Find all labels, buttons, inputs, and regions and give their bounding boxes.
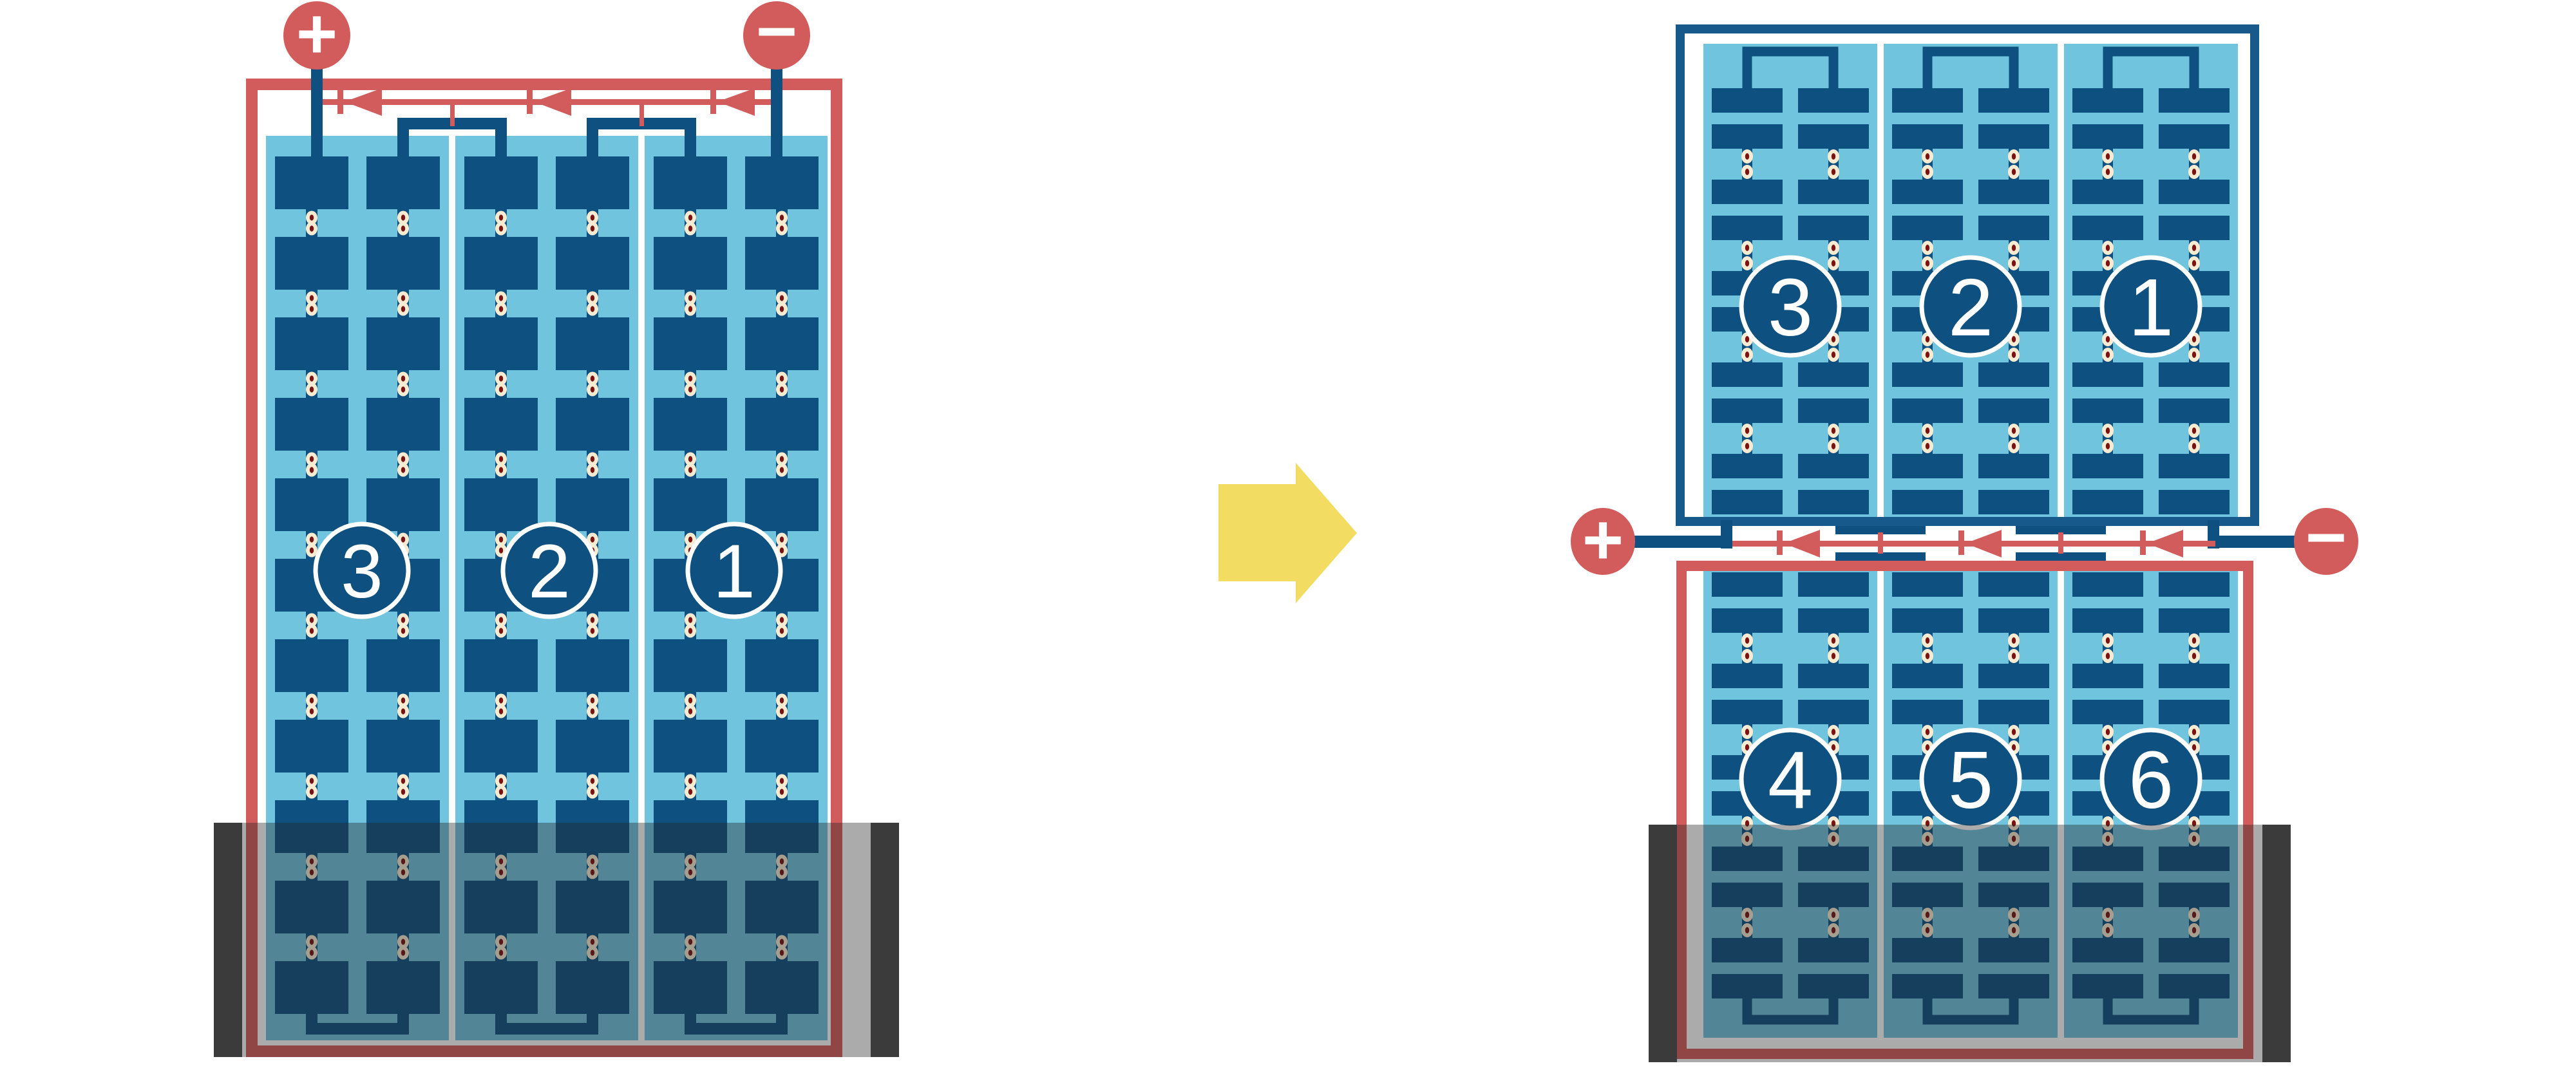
left-positive-wire <box>311 63 323 161</box>
string-number: 5 <box>1948 735 1993 825</box>
rb-string-badge-4: 4 <box>1741 730 1839 828</box>
flood-water <box>1677 825 2262 1062</box>
flood-cap-left <box>214 823 242 1057</box>
string-number: 4 <box>1768 735 1813 825</box>
string-number: 1 <box>2128 262 2173 353</box>
solar-panel-diagram: + − 3 2 1 <box>0 0 2576 1068</box>
rb-string-badge-5: 5 <box>1922 730 2020 828</box>
rb-string-badge-6: 6 <box>2102 730 2200 828</box>
string-number: 3 <box>341 529 383 614</box>
plus-icon: + <box>296 0 337 73</box>
left-string-badge-2: 2 <box>503 524 596 617</box>
string-number: 2 <box>1948 262 1993 353</box>
flood-water <box>242 823 871 1057</box>
flood-cap-right <box>871 823 899 1057</box>
string-number: 2 <box>528 529 571 614</box>
left-bypass-diode-line <box>317 88 777 126</box>
minus-icon: − <box>756 0 797 71</box>
plus-icon: + <box>1582 500 1624 579</box>
rt-string-badge-2: 2 <box>1922 258 2020 355</box>
flood-cap-right <box>2262 825 2291 1062</box>
positive-terminal-right: + <box>1571 500 1635 579</box>
diode-tick <box>1878 532 1883 554</box>
string-number: 3 <box>1768 262 1813 353</box>
left-string-badge-3: 3 <box>316 524 408 617</box>
flood-overlay-right <box>1649 825 2291 1062</box>
left-negative-wire <box>771 63 782 161</box>
string-number: 1 <box>713 529 755 614</box>
left-string-badge-1: 1 <box>688 524 781 617</box>
diode-tap-drop <box>450 102 455 126</box>
right-bypass-diode-line <box>1732 530 2215 557</box>
positive-terminal-left: + <box>283 0 350 73</box>
negative-terminal-left: − <box>743 0 810 71</box>
flood-cap-left <box>1649 825 1677 1062</box>
negative-terminal-right: − <box>2294 498 2358 577</box>
rt-string-badge-1: 1 <box>2102 258 2200 355</box>
diode-tick <box>2058 532 2063 554</box>
right-top-panel: 3 2 1 <box>1680 29 2255 521</box>
string-number: 6 <box>2128 735 2173 825</box>
diagram-stage: + − 3 2 1 <box>0 0 2576 1068</box>
flood-overlay-left <box>214 823 899 1057</box>
transition-arrow-icon <box>1218 463 1357 603</box>
rt-string-badge-3: 3 <box>1741 258 1839 355</box>
diode-tap-drop <box>639 102 644 126</box>
minus-icon: − <box>2306 498 2347 577</box>
